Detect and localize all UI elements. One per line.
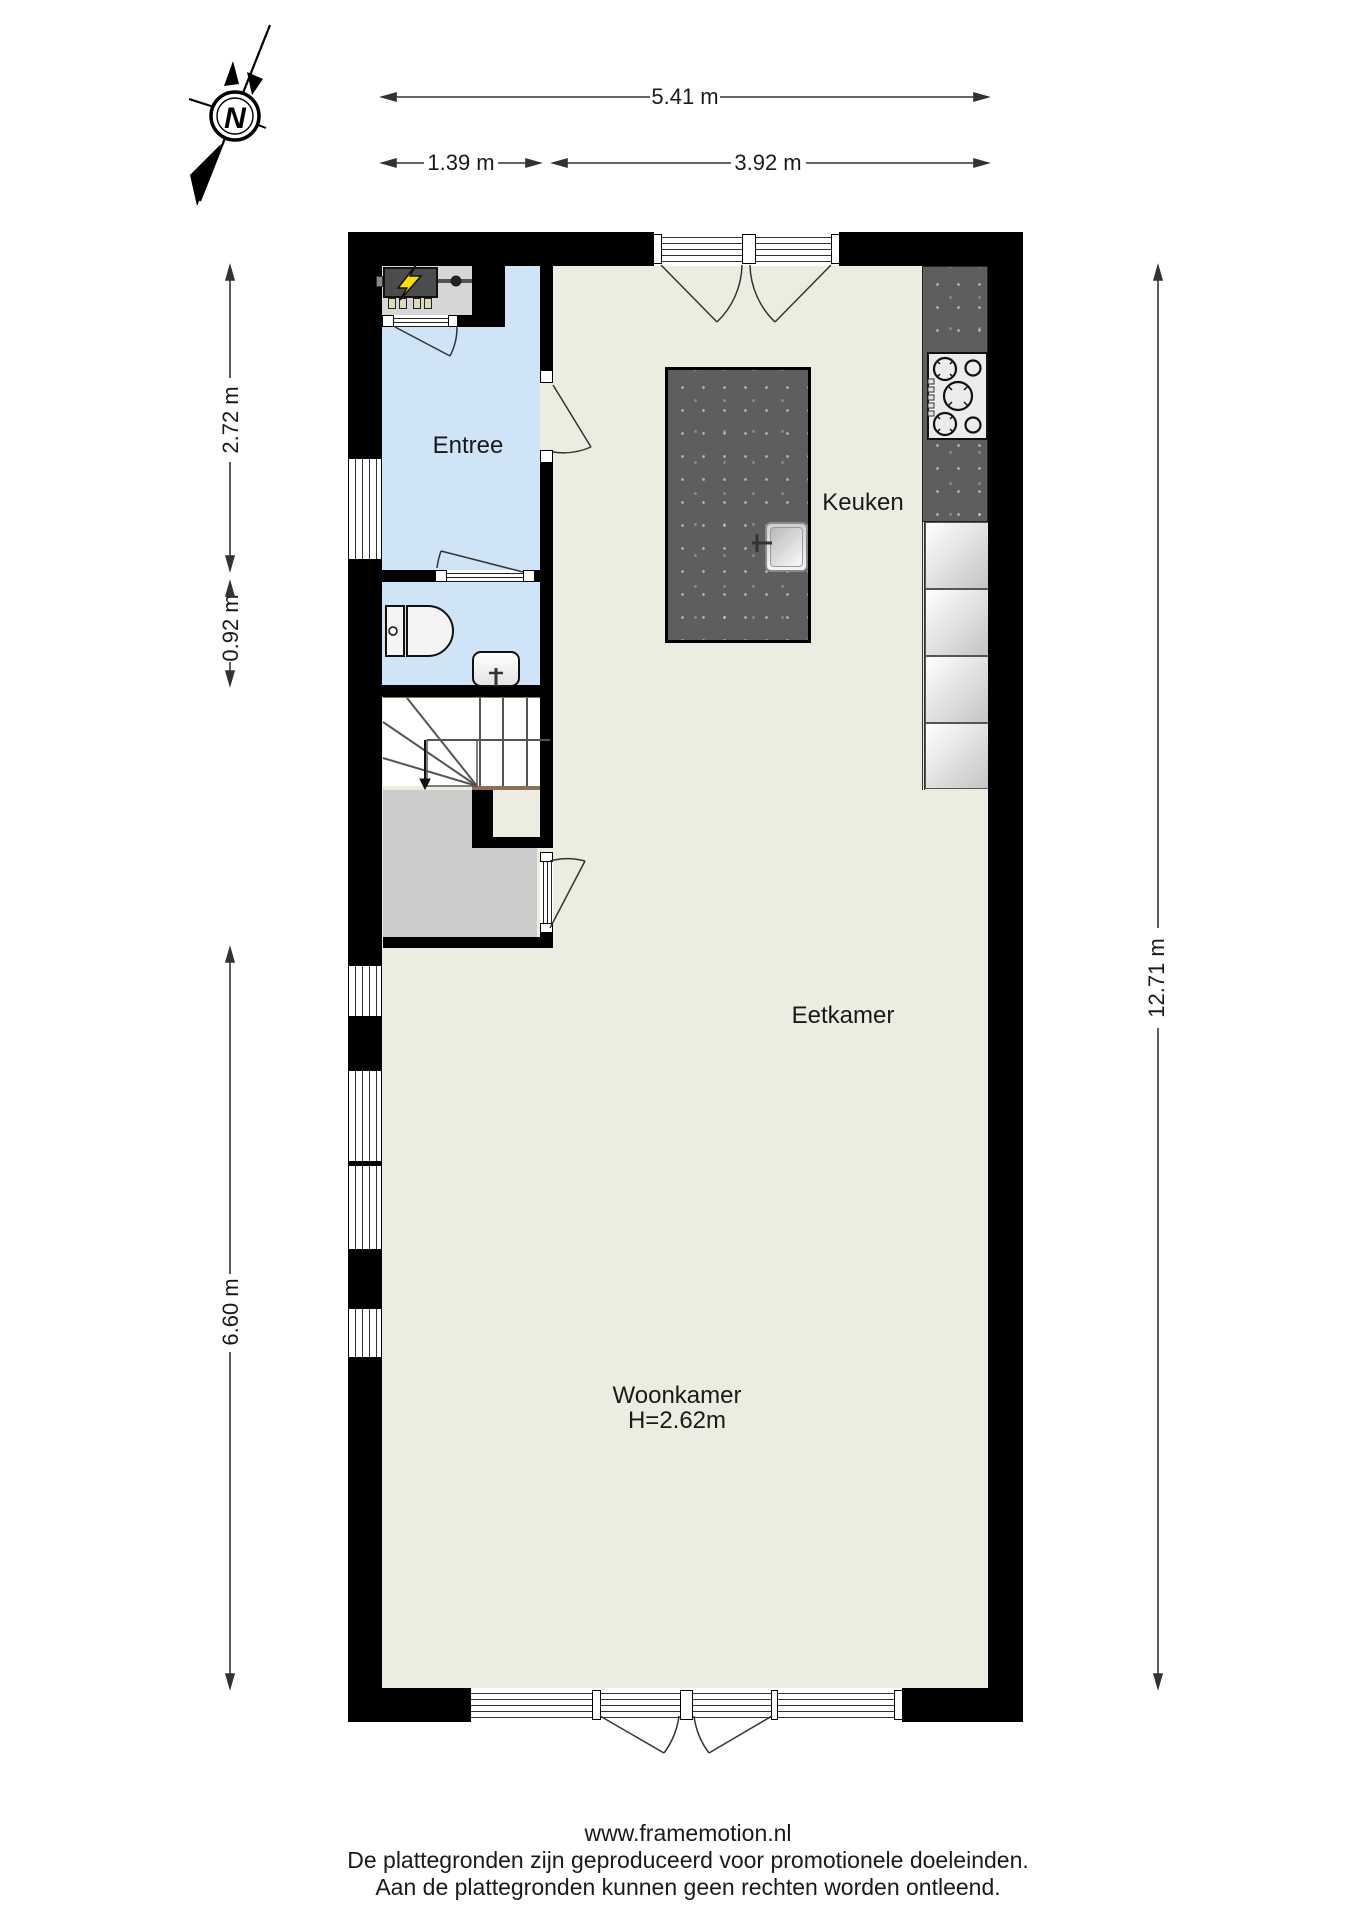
- door-frame: [771, 1690, 778, 1720]
- door-frame: [742, 234, 756, 264]
- wall-toilet-north-a: [382, 570, 435, 582]
- door-frame: [592, 1690, 601, 1720]
- dimension-entree-width: 1.39 m: [427, 150, 494, 176]
- wall-top-left: [348, 232, 653, 266]
- room-label-woonkamer-height: H=2.62m: [628, 1407, 726, 1435]
- north-letter: N: [224, 102, 247, 135]
- cabinet-unit: [925, 723, 989, 789]
- doorway-entree-living: [540, 383, 553, 450]
- wash-basin: [472, 651, 520, 687]
- room-label-keuken: Keuken: [822, 489, 903, 517]
- wall-entree-east-lower: [540, 463, 553, 848]
- meter-pipe-stub: [376, 276, 383, 287]
- wall-toilet-south: [382, 685, 553, 697]
- window-woonkamer-west-1: [349, 965, 381, 1017]
- island-sink-basin: [770, 527, 803, 567]
- wall-meter-cabinet-stub: [472, 266, 505, 327]
- closet-door: [540, 862, 553, 923]
- wall-bottom-right: [903, 1688, 1023, 1722]
- wall-closet-vertical: [472, 790, 493, 848]
- cabinet-unit: [925, 589, 989, 656]
- cabinet-unit: [925, 656, 989, 723]
- toilet-tank: [385, 605, 405, 657]
- wall-closet-south: [383, 937, 553, 948]
- dimension-toilet-depth: 0.92 m: [218, 594, 244, 661]
- meter-panel: [383, 267, 438, 298]
- kitchen-cabinets: [922, 522, 988, 790]
- toilet-door: [447, 570, 523, 582]
- wall-closet-horizontal: [493, 837, 553, 848]
- cabinet-unit: [925, 522, 989, 589]
- stove-cooktop: [927, 352, 988, 440]
- north-arrow-icon: N: [189, 25, 270, 206]
- wall-entree-east-upper: [540, 266, 553, 370]
- door-frame: [540, 450, 553, 463]
- door-frame: [680, 1690, 693, 1720]
- room-label-entree: Entree: [433, 432, 504, 460]
- room-label-eetkamer: Eetkamer: [792, 1002, 895, 1030]
- door-frame: [435, 570, 447, 582]
- staircase: [383, 698, 550, 786]
- fuse-box: [413, 298, 421, 309]
- meter-cabinet-door: [394, 315, 448, 327]
- door-frame: [540, 923, 553, 933]
- floor-stair-closet-2: [383, 848, 537, 937]
- door-frame: [894, 1690, 903, 1720]
- wall-bottom-left: [348, 1688, 470, 1722]
- dimension-keuken-width: 3.92 m: [734, 150, 801, 176]
- window-woonkamer-west-2: [349, 1070, 381, 1162]
- kitchen-island: [665, 367, 811, 643]
- fuse-box: [399, 298, 407, 309]
- floorplan-page: Entree Keuken Eetkamer Woonkamer H=2.62m…: [0, 0, 1358, 1920]
- door-frame: [540, 370, 553, 383]
- island-sink: [765, 522, 808, 572]
- wall-right: [988, 232, 1023, 1722]
- footer-website: www.framemotion.nl: [584, 1820, 791, 1847]
- dimension-total-width: 5.41 m: [651, 84, 718, 110]
- wall-toilet-north-b: [535, 570, 553, 582]
- dimension-woonkamer-depth: 6.60 m: [218, 1278, 244, 1345]
- door-frame: [523, 570, 535, 582]
- footer-disclaimer-2: Aan de plattegronden kunnen geen rechten…: [375, 1874, 1000, 1901]
- door-frame: [448, 315, 458, 327]
- door-frame: [653, 234, 662, 264]
- fuse-box: [388, 298, 396, 309]
- door-frame: [540, 852, 553, 862]
- window-woonkamer-west-3: [349, 1165, 381, 1250]
- window-woonkamer-west-4: [349, 1308, 381, 1358]
- window-entree-west: [349, 458, 381, 560]
- fuse-box: [424, 298, 432, 309]
- wall-meter-cabinet-bit: [458, 315, 472, 327]
- dimension-entree-depth: 2.72 m: [218, 386, 244, 453]
- footer-disclaimer-1: De plattegronden zijn geproduceerd voor …: [347, 1847, 1029, 1874]
- dimension-total-depth: 12.71 m: [1144, 938, 1170, 1018]
- door-frame: [831, 234, 840, 264]
- room-label-woonkamer: Woonkamer: [613, 1382, 742, 1410]
- door-frame: [382, 315, 394, 327]
